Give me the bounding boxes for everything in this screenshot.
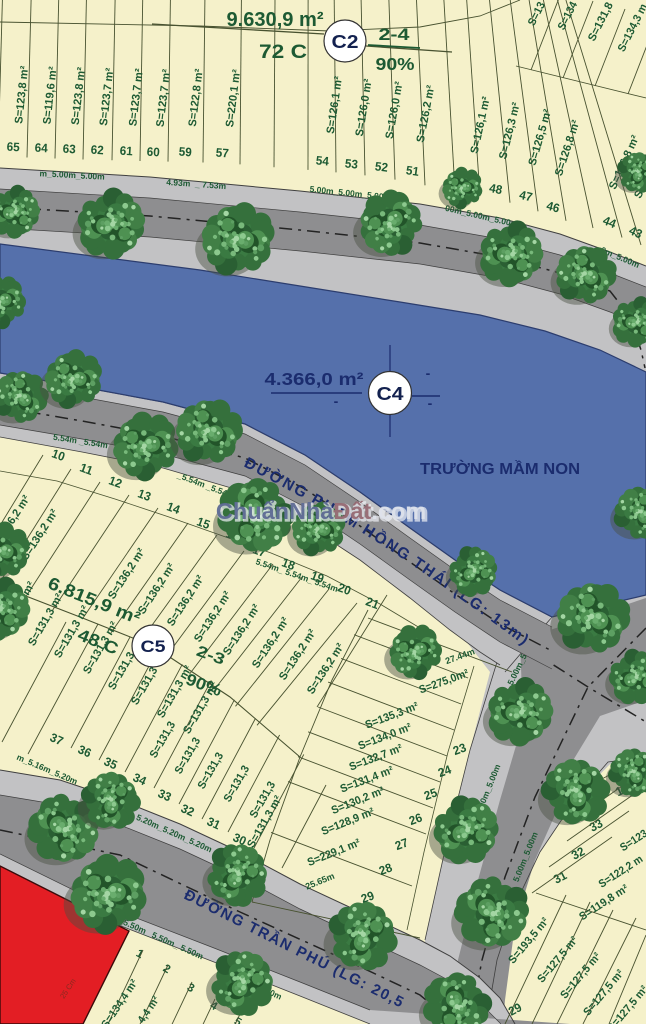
svg-text:61: 61 — [119, 144, 133, 159]
svg-text:65: 65 — [6, 140, 20, 155]
svg-text:4.366,0 m²: 4.366,0 m² — [265, 369, 364, 389]
svg-text:C2: C2 — [332, 32, 359, 52]
svg-text:54: 54 — [315, 153, 329, 168]
svg-text:90%: 90% — [376, 54, 415, 74]
svg-text:ChuẩnNhàĐất.com: ChuẩnNhàĐất.com — [216, 498, 426, 524]
svg-text:51: 51 — [405, 163, 420, 179]
svg-text:-: - — [428, 395, 433, 411]
svg-text:57: 57 — [215, 146, 229, 161]
svg-text:48: 48 — [488, 181, 504, 197]
svg-text:9.630,9 m²: 9.630,9 m² — [227, 9, 324, 31]
svg-text:-: - — [334, 393, 339, 409]
svg-text:62: 62 — [90, 143, 104, 158]
svg-text:59: 59 — [178, 145, 192, 160]
svg-text:C5: C5 — [141, 637, 166, 656]
svg-text:2-4: 2-4 — [379, 26, 411, 44]
svg-text:63: 63 — [62, 142, 76, 157]
svg-text:52: 52 — [374, 159, 389, 174]
svg-text:C4: C4 — [377, 384, 404, 404]
svg-text:72 C: 72 C — [259, 42, 307, 63]
svg-text:53: 53 — [344, 156, 359, 171]
svg-text:-: - — [426, 365, 431, 381]
svg-text:64: 64 — [34, 141, 48, 156]
svg-text:TRƯỜNG MẦM NON: TRƯỜNG MẦM NON — [420, 459, 580, 478]
svg-text:60: 60 — [146, 145, 160, 160]
